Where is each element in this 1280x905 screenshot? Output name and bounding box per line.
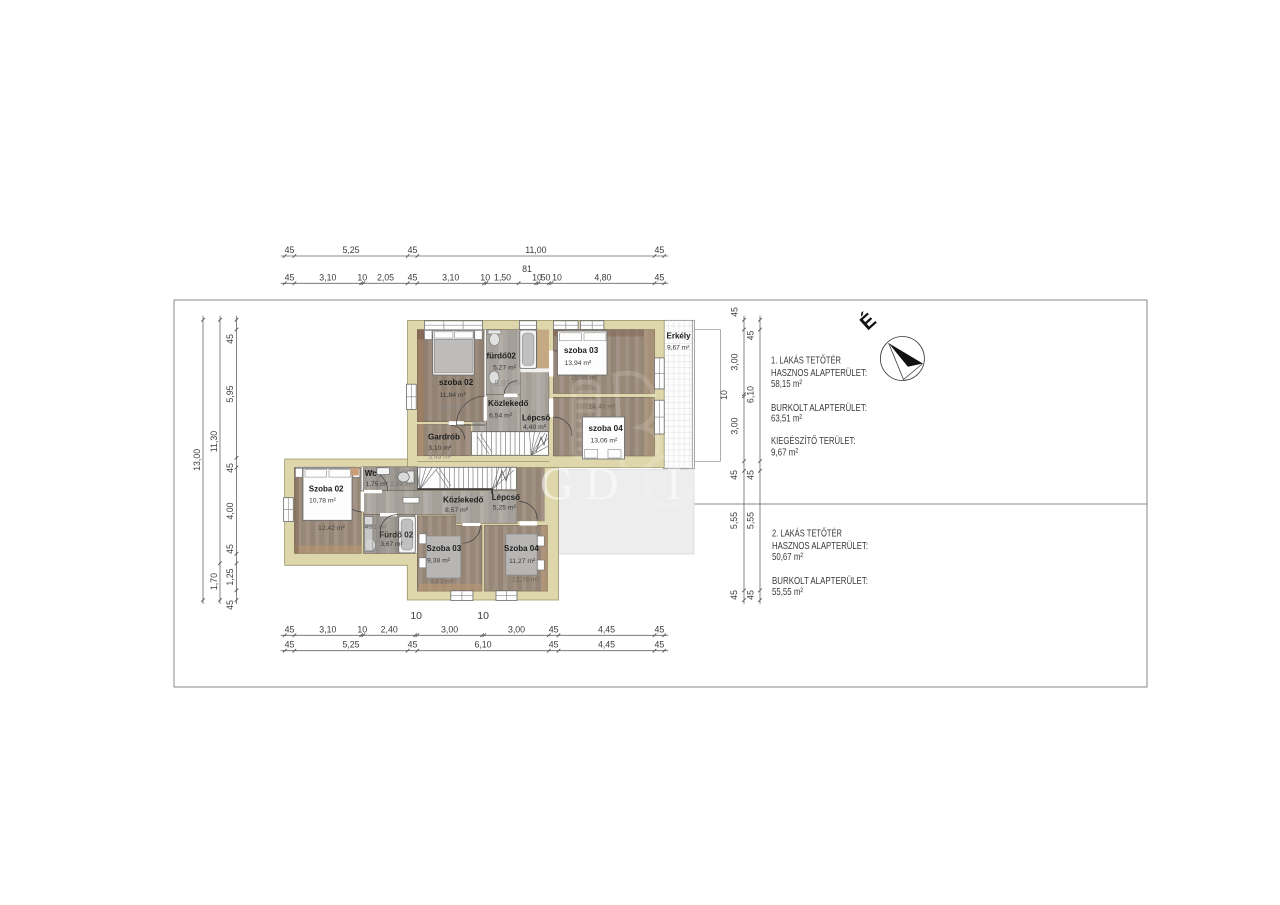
- svg-text:12,78 m²: 12,78 m²: [512, 577, 540, 584]
- svg-text:14,40 m²: 14,40 m²: [589, 404, 617, 411]
- svg-text:10: 10: [357, 624, 367, 634]
- svg-text:45: 45: [549, 624, 559, 634]
- svg-text:5,25: 5,25: [342, 640, 359, 650]
- svg-text:45: 45: [729, 470, 739, 480]
- svg-text:Szoba 04: Szoba 04: [504, 544, 539, 553]
- svg-text:45: 45: [746, 331, 756, 341]
- svg-text:szoba 04: szoba 04: [589, 424, 624, 433]
- svg-text:50,67 m²: 50,67 m²: [772, 552, 803, 563]
- svg-text:45: 45: [225, 463, 235, 473]
- svg-text:3,00: 3,00: [441, 624, 458, 634]
- svg-text:50: 50: [541, 272, 551, 282]
- svg-text:45: 45: [408, 640, 418, 650]
- svg-text:6,54 m²: 6,54 m²: [489, 413, 513, 420]
- svg-text:BURKOLT ALAPTERÜLET:: BURKOLT ALAPTERÜLET:: [771, 402, 867, 414]
- svg-text:Közlekedő: Közlekedő: [443, 496, 484, 505]
- svg-text:11,27 m²: 11,27 m²: [509, 558, 536, 565]
- svg-text:45: 45: [655, 245, 665, 255]
- svg-text:Fürdő 02: Fürdő 02: [379, 531, 413, 540]
- svg-text:55,55 m²: 55,55 m²: [772, 587, 803, 598]
- svg-text:13,32 m²: 13,32 m²: [440, 404, 468, 411]
- svg-text:Gardrób: Gardrób: [428, 432, 460, 441]
- svg-text:45: 45: [285, 624, 295, 634]
- svg-text:45: 45: [225, 334, 235, 344]
- svg-text:3,10: 3,10: [319, 624, 336, 634]
- svg-text:4,45: 4,45: [598, 624, 615, 634]
- svg-text:58,15 m²: 58,15 m²: [771, 379, 802, 390]
- svg-text:9,67 m²: 9,67 m²: [667, 345, 690, 352]
- svg-text:15,45 m²: 15,45 m²: [571, 374, 599, 381]
- svg-text:szoba 03: szoba 03: [564, 346, 599, 355]
- svg-text:5,95: 5,95: [225, 385, 235, 402]
- svg-text:Lépcső: Lépcső: [492, 493, 520, 502]
- svg-text:1,50: 1,50: [494, 272, 511, 282]
- svg-text:3,00: 3,00: [730, 417, 740, 434]
- svg-text:81: 81: [522, 264, 532, 274]
- svg-text:3,10: 3,10: [442, 272, 459, 282]
- svg-text:5,91 m²: 5,91 m²: [495, 379, 522, 388]
- svg-text:4,40 m²: 4,40 m²: [523, 424, 547, 431]
- svg-text:45: 45: [285, 245, 295, 255]
- svg-text:63,51 m²: 63,51 m²: [771, 413, 802, 424]
- svg-text:1,75 m²: 1,75 m²: [366, 481, 389, 488]
- svg-text:5,27 m²: 5,27 m²: [493, 365, 517, 372]
- svg-text:9,38 m²: 9,38 m²: [427, 558, 451, 565]
- svg-text:13,94 m²: 13,94 m²: [565, 360, 593, 367]
- svg-text:Erkély: Erkély: [667, 332, 692, 341]
- svg-text:3,00: 3,00: [508, 624, 525, 634]
- svg-text:HASZNOS ALAPTERÜLET:: HASZNOS ALAPTERÜLET:: [771, 367, 867, 379]
- svg-text:5,25: 5,25: [342, 245, 359, 255]
- svg-text:szoba 02: szoba 02: [439, 378, 474, 387]
- svg-text:G: G: [540, 458, 574, 510]
- svg-text:4,80: 4,80: [594, 272, 611, 282]
- svg-text:45: 45: [225, 600, 235, 610]
- svg-text:13,06 m²: 13,06 m²: [591, 438, 619, 445]
- svg-text:11,30: 11,30: [209, 431, 219, 452]
- svg-text:3,10: 3,10: [319, 272, 336, 282]
- svg-text:5,25 m²: 5,25 m²: [493, 505, 517, 512]
- svg-text:45: 45: [746, 590, 756, 600]
- svg-text:2. LAKÁS TETŐTÉR: 2. LAKÁS TETŐTÉR: [772, 525, 842, 539]
- svg-text:1. LAKÁS TETŐTÉR: 1. LAKÁS TETŐTÉR: [771, 352, 841, 366]
- svg-text:45: 45: [729, 590, 739, 600]
- svg-text:11,00: 11,00: [525, 245, 546, 255]
- svg-text:9,67 m²: 9,67 m²: [771, 447, 798, 458]
- svg-text:45: 45: [225, 544, 235, 554]
- svg-text:4,45: 4,45: [598, 640, 615, 650]
- svg-text:10,78 m²: 10,78 m²: [309, 498, 337, 505]
- svg-text:fürdő02: fürdő02: [487, 352, 517, 361]
- svg-text:5,55: 5,55: [729, 512, 739, 529]
- svg-text:9,83 m²: 9,83 m²: [430, 579, 454, 586]
- svg-text:10: 10: [410, 610, 422, 622]
- svg-text:1,25: 1,25: [225, 568, 235, 585]
- svg-text:45: 45: [549, 640, 559, 650]
- svg-text:45: 45: [655, 624, 665, 634]
- svg-text:KIEGÉSZÍTŐ TERÜLET:: KIEGÉSZÍTŐ TERÜLET:: [771, 433, 856, 447]
- svg-text:45: 45: [408, 272, 418, 282]
- svg-text:1,70: 1,70: [209, 573, 219, 590]
- svg-text:45: 45: [285, 640, 295, 650]
- svg-text:3,00: 3,00: [730, 353, 740, 370]
- svg-text:3,10 m²: 3,10 m²: [428, 445, 452, 452]
- svg-text:10: 10: [357, 272, 367, 282]
- svg-text:12,42 m²: 12,42 m²: [318, 525, 346, 532]
- svg-text:D: D: [585, 458, 619, 510]
- svg-text:10: 10: [480, 272, 490, 282]
- svg-text:10: 10: [552, 272, 562, 282]
- svg-text:Wc: Wc: [365, 469, 378, 478]
- svg-text:2,39 m²: 2,39 m²: [390, 481, 413, 488]
- svg-text:45: 45: [285, 272, 295, 282]
- svg-text:45: 45: [655, 640, 665, 650]
- svg-text:10: 10: [477, 610, 489, 622]
- svg-text:Lépcső: Lépcső: [522, 413, 550, 422]
- svg-text:4,00: 4,00: [225, 502, 235, 519]
- svg-text:8,57 m²: 8,57 m²: [445, 507, 469, 514]
- svg-text:6,10: 6,10: [746, 386, 756, 403]
- svg-text:2,40: 2,40: [381, 624, 398, 634]
- svg-text:11,84 m²: 11,84 m²: [440, 392, 467, 399]
- svg-text:2,05: 2,05: [377, 272, 394, 282]
- svg-text:45: 45: [408, 245, 418, 255]
- svg-text:13,00: 13,00: [192, 449, 202, 471]
- svg-text:Szoba 03: Szoba 03: [427, 544, 462, 553]
- svg-text:Szoba 02: Szoba 02: [309, 484, 344, 493]
- svg-text:5,55: 5,55: [746, 512, 756, 529]
- svg-text:3,49 m²: 3,49 m²: [428, 454, 452, 461]
- svg-text:45: 45: [655, 272, 665, 282]
- svg-text:6,10: 6,10: [474, 640, 491, 650]
- svg-text:45: 45: [730, 307, 740, 317]
- svg-text:Közlekedő: Közlekedő: [488, 399, 529, 408]
- svg-text:BURKOLT ALAPTERÜLET:: BURKOLT ALAPTERÜLET:: [772, 575, 868, 587]
- svg-text:HASZNOS ALAPTERÜLET:: HASZNOS ALAPTERÜLET:: [772, 540, 868, 552]
- svg-text:3,67 m²: 3,67 m²: [380, 541, 403, 548]
- svg-text:45: 45: [746, 470, 756, 480]
